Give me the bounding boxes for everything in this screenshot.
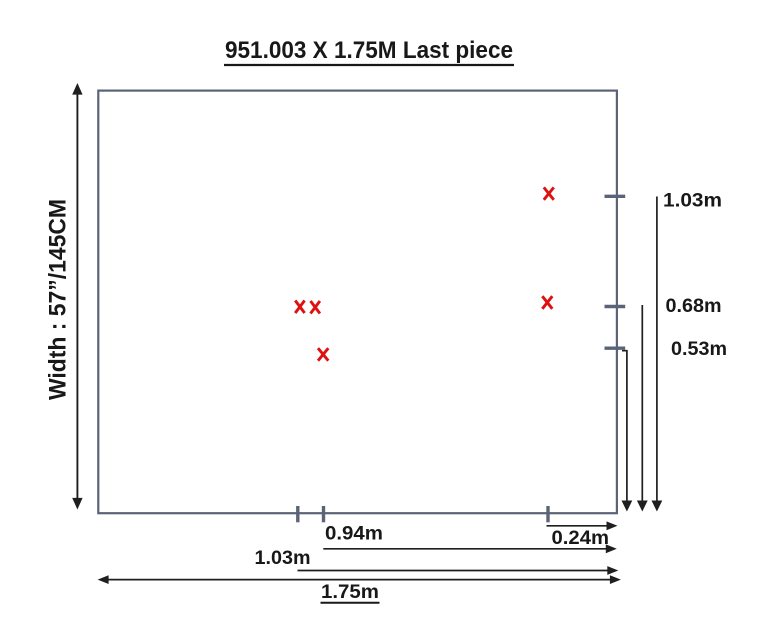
svg-text:0.24m: 0.24m bbox=[552, 528, 610, 549]
svg-text:1.03m: 1.03m bbox=[255, 548, 311, 569]
svg-text:0.53m: 0.53m bbox=[671, 339, 727, 360]
svg-text:Width : 57”/145CM: Width : 57”/145CM bbox=[45, 199, 72, 400]
svg-text:1.03m: 1.03m bbox=[663, 191, 722, 212]
svg-text:0.68m: 0.68m bbox=[666, 296, 722, 317]
svg-text:0.94m: 0.94m bbox=[325, 524, 383, 545]
svg-text:951.003 X 1.75M Last piece: 951.003 X 1.75M Last piece bbox=[225, 37, 513, 64]
svg-text:1.75m: 1.75m bbox=[321, 582, 379, 603]
